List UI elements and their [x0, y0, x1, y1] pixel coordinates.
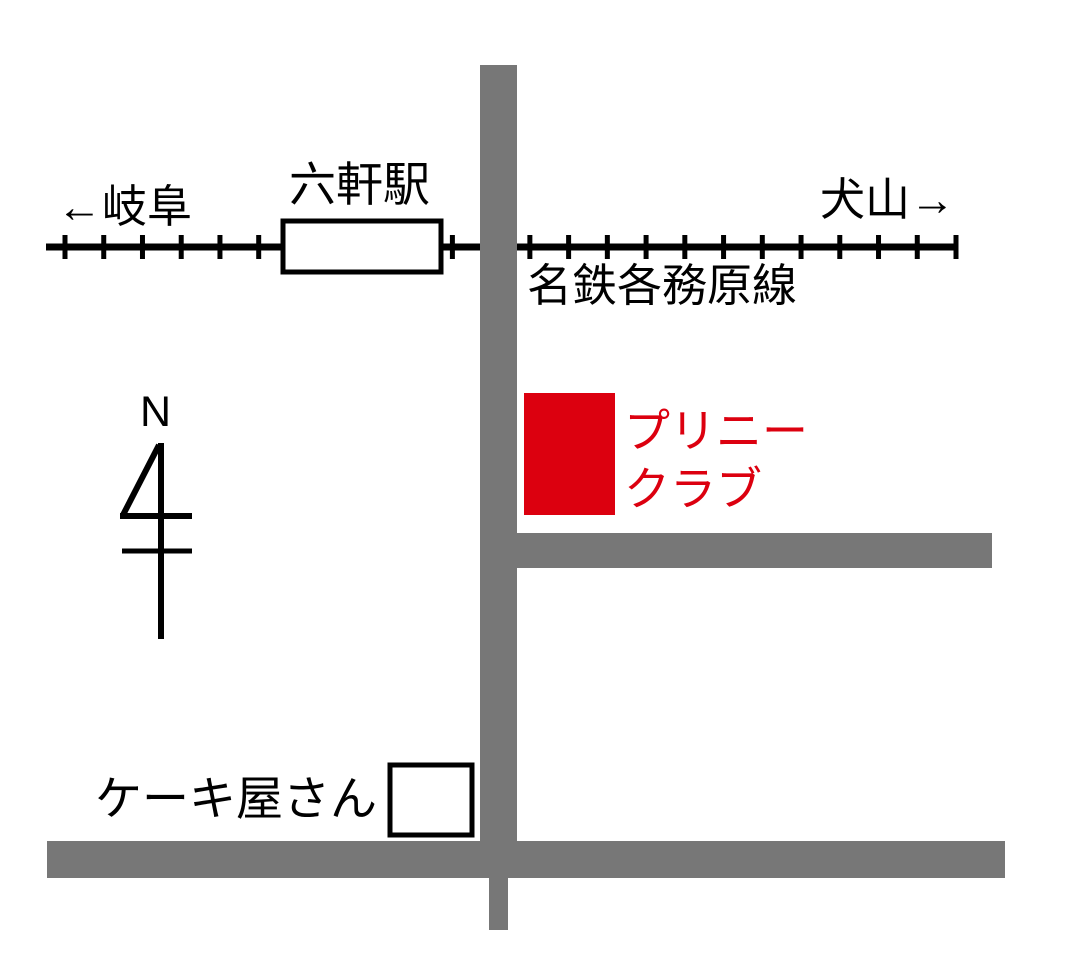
direction-gifu-label: ←岐阜	[57, 184, 192, 229]
station-name-label: 六軒駅	[289, 161, 430, 208]
cake-shop-label: ケーキ屋さん	[95, 775, 377, 822]
access-map: ←岐阜 六軒駅 犬山→ 名鉄各務原線 プリニー クラブ N ケーキ屋さん	[0, 0, 1073, 966]
destination-name-line2: クラブ	[624, 466, 762, 512]
destination-name-line1: プリニー	[624, 408, 808, 454]
direction-inuyama-label: 犬山→	[820, 177, 955, 222]
railway-line-name-label: 名鉄各務原線	[527, 263, 797, 308]
compass-north-arrow-icon	[120, 443, 192, 639]
road-south-stub	[489, 878, 508, 930]
road-middle-east	[480, 533, 992, 568]
road-vertical	[480, 65, 517, 878]
destination-marker	[524, 393, 615, 515]
road-bottom	[47, 841, 1005, 878]
compass-north-label: N	[140, 391, 171, 434]
station-box	[283, 221, 441, 272]
cake-shop-box	[390, 765, 472, 835]
